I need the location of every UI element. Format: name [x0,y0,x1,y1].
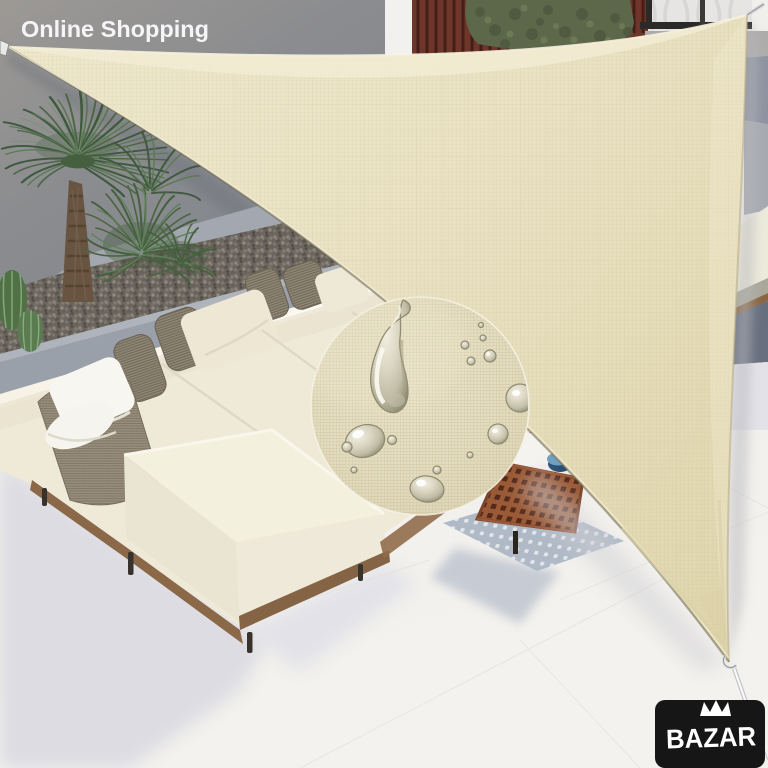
svg-text:Online Shopping: Online Shopping [21,16,209,42]
svg-text:BAZAR: BAZAR [666,721,757,754]
